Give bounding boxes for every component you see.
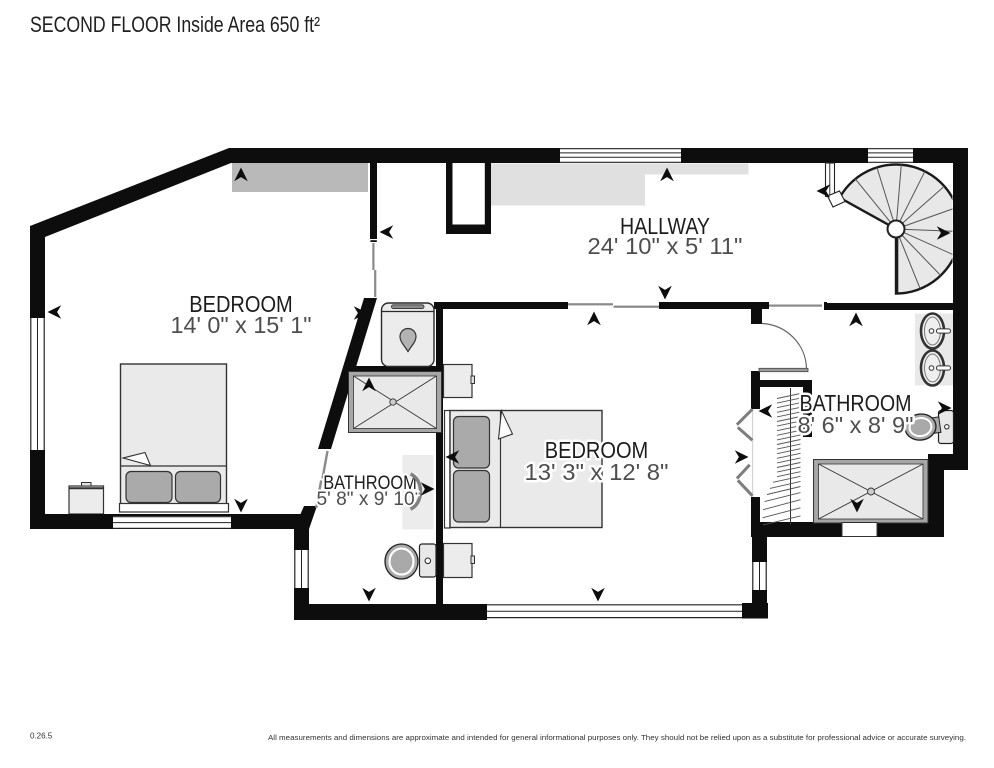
svg-text:5' 8" x 9' 10": 5' 8" x 9' 10" — [317, 489, 422, 510]
svg-text:13' 3" x 12' 8": 13' 3" x 12' 8" — [525, 459, 669, 485]
svg-text:8' 6" x 8' 9": 8' 6" x 8' 9" — [798, 412, 914, 438]
svg-text:All measurements and dimension: All measurements and dimensions are appr… — [268, 733, 966, 742]
svg-text:0.26.5: 0.26.5 — [30, 731, 53, 740]
svg-text:24' 10" x 5' 11": 24' 10" x 5' 11" — [588, 233, 743, 259]
svg-text:14' 0" x 15' 1": 14' 0" x 15' 1" — [171, 312, 312, 338]
svg-text:SECOND FLOOR Inside Area 650 f: SECOND FLOOR Inside Area 650 ft² — [30, 12, 320, 37]
